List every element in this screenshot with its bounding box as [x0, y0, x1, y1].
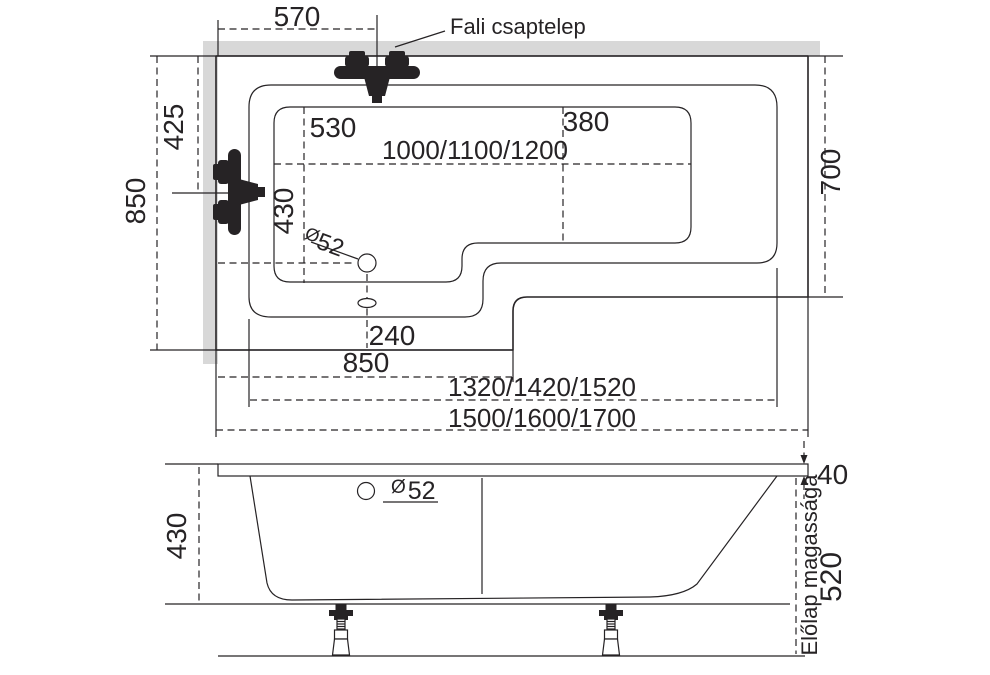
drain-hole: [358, 254, 376, 272]
side-wall-faucet-icon: [213, 149, 265, 235]
dim-1500-label: 1500/1600/1700: [448, 403, 636, 433]
dim-850-left-label: 850: [120, 178, 151, 225]
dim-850-bottom-label: 850: [343, 347, 390, 378]
dim-430-side-label: 430: [161, 513, 192, 560]
tub-body-profile: [250, 476, 777, 600]
dim-430-label: 430: [268, 188, 299, 235]
wall-faucet-label: Fali csaptelep: [450, 14, 586, 39]
overflow-hole: [358, 299, 376, 308]
dim-520-label: 520: [815, 552, 848, 602]
drain-diameter-label: Ø52: [300, 223, 347, 262]
adjustable-foot-right: [599, 604, 623, 655]
dim-570-label: 570: [274, 1, 321, 32]
dim-530-label: 530: [310, 112, 357, 143]
dim-425-label: 425: [158, 104, 189, 151]
dim-700-label: 700: [815, 149, 846, 196]
drawing-canvas: 570 Fali csaptelep 425 850 530 380 1000/…: [0, 0, 990, 675]
drain-diameter-side-label: Ø52: [391, 477, 436, 505]
top-view: 570 Fali csaptelep 425 850 530 380 1000/…: [120, 1, 846, 437]
side-view: Ø52 430 40 Előlap magassága 520: [161, 441, 848, 656]
dim-1320-label: 1320/1420/1520: [448, 372, 636, 402]
arrow-down-icon: [801, 455, 808, 464]
bathtub-technical-drawing: 570 Fali csaptelep 425 850 530 380 1000/…: [0, 0, 990, 675]
adjustable-foot-left: [329, 604, 353, 655]
dim-380-label: 380: [563, 106, 610, 137]
drain-hole-side: [358, 483, 375, 500]
tub-outer-contour: [216, 56, 808, 350]
rim-profile: [218, 464, 808, 476]
dim-length-variants-label: 1000/1100/1200: [382, 135, 568, 165]
wall-top: [203, 41, 820, 56]
